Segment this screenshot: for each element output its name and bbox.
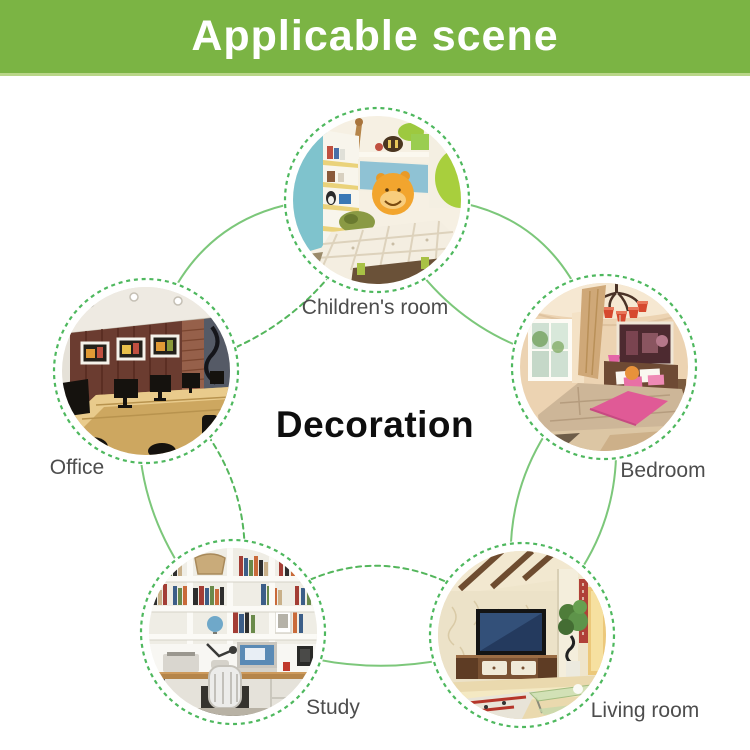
- childrens-room-photo: [293, 113, 487, 284]
- decoration-scene-diagram: [0, 0, 750, 750]
- center-title: Decoration: [175, 404, 575, 446]
- label-study: Study: [273, 696, 393, 720]
- label-childrens-room: Children's room: [255, 296, 495, 320]
- label-office: Office: [17, 456, 137, 480]
- label-living-room: Living room: [565, 699, 725, 723]
- scene-circle-childrens-room: [283, 106, 487, 294]
- page: Applicable scene: [0, 0, 750, 750]
- living-room-photo: [438, 551, 606, 719]
- label-bedroom: Bedroom: [603, 459, 723, 483]
- study-photo: [149, 548, 317, 716]
